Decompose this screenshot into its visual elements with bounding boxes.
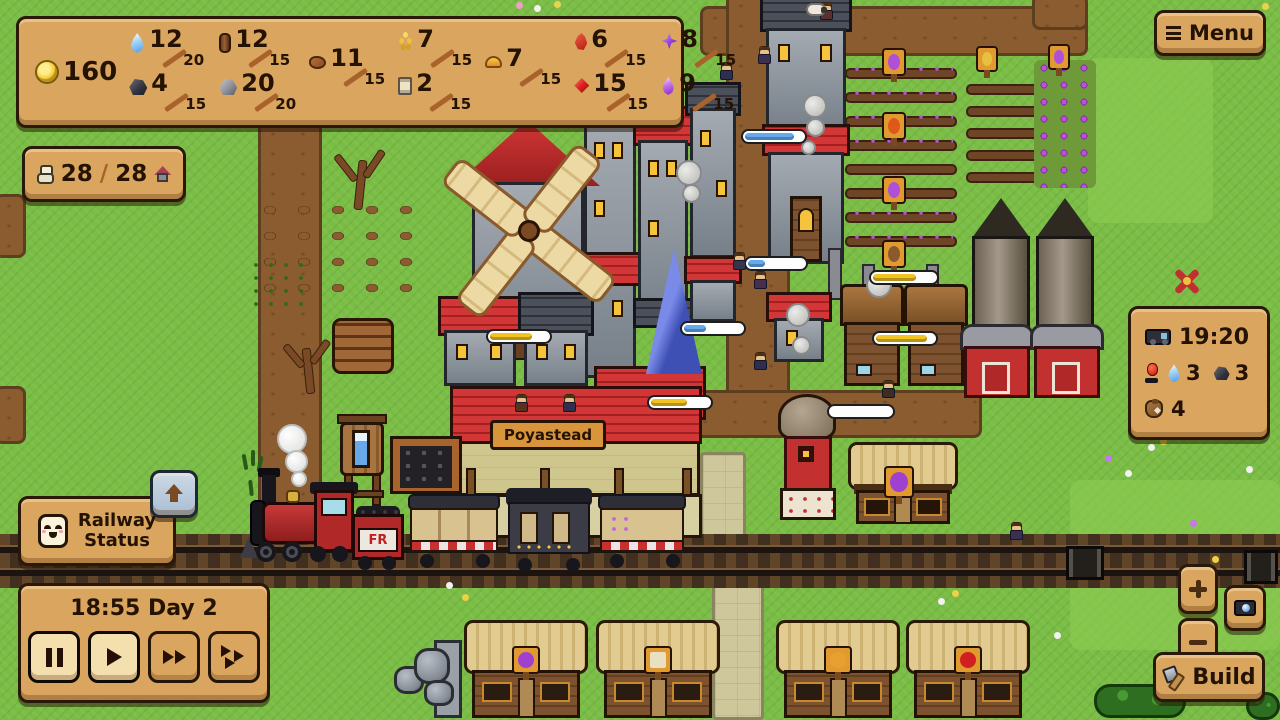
smoke-puff bbox=[792, 336, 811, 355]
minus-icon bbox=[1189, 633, 1207, 651]
flower bbox=[1148, 444, 1155, 451]
speed-controls bbox=[28, 631, 260, 683]
flower bbox=[1054, 632, 1061, 639]
resource-max: 15 bbox=[364, 70, 385, 88]
train-icon bbox=[1145, 329, 1171, 345]
fastest-button[interactable] bbox=[208, 631, 260, 683]
flower bbox=[534, 5, 541, 12]
flower bbox=[1125, 470, 1132, 477]
villager bbox=[754, 271, 767, 289]
resource-ruby: 1515 bbox=[574, 75, 649, 119]
loco-boiler[interactable] bbox=[262, 502, 322, 544]
red-silo[interactable] bbox=[784, 436, 832, 492]
steam-puff bbox=[291, 471, 307, 487]
window bbox=[612, 142, 623, 159]
plus-icon bbox=[1189, 580, 1207, 598]
dirt-road-stub bbox=[0, 386, 26, 444]
log-icon bbox=[219, 33, 231, 53]
stall-sign[interactable] bbox=[954, 646, 982, 674]
silo-base bbox=[780, 488, 836, 520]
window bbox=[564, 344, 576, 360]
resource-clay: 1115 bbox=[309, 50, 386, 94]
station-post bbox=[682, 468, 692, 496]
resource-column: 1115 bbox=[309, 31, 386, 113]
resource-paper: 215 bbox=[398, 75, 473, 119]
resource-column: 715 bbox=[485, 31, 562, 113]
signal-icon bbox=[1145, 363, 1158, 383]
resource-max: 15 bbox=[185, 95, 206, 113]
screenshot-button[interactable] bbox=[1224, 585, 1266, 631]
dirt-road-stub bbox=[0, 194, 26, 258]
villager bbox=[758, 46, 771, 64]
stall-sign[interactable] bbox=[644, 646, 672, 674]
coin-count: 160 bbox=[63, 57, 117, 87]
resource-max: 15 bbox=[451, 51, 472, 69]
stone-icon bbox=[219, 79, 237, 95]
window bbox=[594, 200, 605, 217]
villager-icon bbox=[37, 165, 54, 184]
resource-coal: 415 bbox=[129, 75, 207, 119]
resource-max: 15 bbox=[713, 95, 734, 113]
carrot-glyph bbox=[888, 118, 900, 134]
train-cargo-row: 3 3 bbox=[1145, 361, 1253, 385]
gem-glyph bbox=[960, 652, 976, 668]
barn-door bbox=[1052, 362, 1080, 394]
railway-status-line2: Status bbox=[84, 531, 150, 551]
blush bbox=[42, 530, 46, 533]
farm-sign[interactable] bbox=[882, 48, 906, 76]
wheat-icon bbox=[398, 32, 413, 52]
progress-bar-fill bbox=[490, 333, 532, 340]
coal-icon bbox=[129, 79, 147, 95]
flower bbox=[1190, 520, 1197, 527]
progress-bar-fill bbox=[876, 335, 927, 342]
loco-chimney bbox=[262, 475, 276, 505]
population-panel: 28 / 28 bbox=[22, 146, 186, 202]
smoke-puff bbox=[803, 94, 827, 118]
build-button[interactable]: Build bbox=[1153, 652, 1265, 702]
coin-counter: 160 bbox=[35, 31, 117, 113]
resource-max: 20 bbox=[275, 95, 296, 113]
resource-value: 20 bbox=[241, 69, 274, 97]
tender-logo: FR bbox=[369, 533, 388, 548]
loco-wheel bbox=[256, 542, 276, 562]
house-icon bbox=[154, 166, 171, 182]
stall-counter bbox=[540, 682, 570, 702]
wheel bbox=[518, 558, 532, 572]
dirt-road-stub bbox=[1032, 0, 1088, 30]
flower bbox=[462, 594, 469, 601]
loco-wheel bbox=[282, 542, 302, 562]
silo-window bbox=[798, 446, 814, 462]
stone-path bbox=[700, 452, 746, 538]
train-arrival-time: 19:20 bbox=[1179, 325, 1249, 350]
water-drop-icon bbox=[1167, 364, 1181, 382]
scroll-icon bbox=[398, 77, 412, 95]
resource-max: 15 bbox=[450, 95, 471, 113]
datetime-label: 18:55 Day 2 bbox=[70, 596, 217, 621]
water-count: 3 bbox=[1186, 361, 1201, 385]
window bbox=[700, 130, 711, 147]
loco-wheel bbox=[310, 546, 326, 562]
car-trim bbox=[410, 540, 498, 552]
resource-bread: 715 bbox=[485, 50, 562, 94]
villager bbox=[1010, 522, 1023, 540]
progress-bar bbox=[744, 256, 808, 271]
resource-value: 6 bbox=[591, 25, 608, 53]
boxcar-door bbox=[552, 512, 570, 544]
stall-sign[interactable] bbox=[824, 646, 852, 674]
window bbox=[920, 364, 936, 376]
stone-pile[interactable] bbox=[414, 648, 450, 684]
progress-bar-fill bbox=[651, 399, 687, 406]
barn-door bbox=[982, 362, 1010, 394]
cargo-count: 4 bbox=[1171, 397, 1186, 421]
resource-value: 11 bbox=[330, 44, 363, 72]
fast-forward-icon bbox=[163, 650, 186, 664]
mushroom-field[interactable] bbox=[1034, 60, 1096, 188]
resource-column: 715 215 bbox=[398, 31, 473, 113]
window bbox=[648, 220, 659, 237]
water-drop-icon bbox=[129, 33, 145, 53]
resource-wheat: 715 bbox=[398, 31, 473, 75]
flower bbox=[1262, 3, 1269, 10]
farm-sign[interactable] bbox=[976, 46, 998, 72]
villager bbox=[733, 252, 746, 270]
flower bbox=[1105, 455, 1112, 462]
dead-tree[interactable] bbox=[282, 338, 334, 394]
train-arrival-row: 19:20 bbox=[1145, 325, 1253, 350]
window bbox=[612, 300, 623, 317]
villager bbox=[563, 394, 576, 412]
wheel bbox=[476, 554, 490, 568]
pinwheel bbox=[1172, 266, 1202, 296]
build-button-label: Build bbox=[1192, 665, 1255, 690]
resource-value: 8 bbox=[681, 25, 698, 53]
flower bbox=[446, 582, 453, 589]
flower bbox=[1212, 556, 1219, 563]
window bbox=[856, 364, 872, 376]
zoom-in-button[interactable] bbox=[1178, 564, 1218, 614]
play-button[interactable] bbox=[88, 631, 140, 683]
railway-status-line1: Railway bbox=[78, 511, 156, 531]
window bbox=[778, 44, 790, 62]
window bbox=[820, 44, 832, 62]
menu-button-label: Menu bbox=[1189, 21, 1254, 45]
flower bbox=[938, 598, 945, 605]
stall-counter bbox=[982, 682, 1012, 702]
resource-column: 815 915 bbox=[661, 31, 737, 113]
pepper-icon bbox=[574, 33, 587, 50]
game-viewport: Poyastead FR bbox=[0, 0, 1280, 720]
boxcar-door bbox=[520, 512, 538, 544]
farm-sign[interactable] bbox=[882, 240, 906, 268]
progress-bar bbox=[869, 270, 939, 285]
water-level bbox=[355, 433, 367, 465]
windmill-hub bbox=[518, 220, 540, 242]
stall-door bbox=[650, 678, 667, 718]
grass-light-patch bbox=[1088, 58, 1213, 223]
passenger-car[interactable] bbox=[410, 508, 498, 544]
steam-puff bbox=[285, 450, 308, 473]
cab-window bbox=[321, 498, 347, 516]
smiley-face-icon bbox=[38, 514, 68, 548]
coal-icon bbox=[1214, 366, 1230, 380]
stone-pile[interactable] bbox=[424, 680, 454, 706]
hammer-icon bbox=[1162, 666, 1184, 688]
steam-dome bbox=[286, 490, 300, 503]
resource-column: 1215 2020 bbox=[219, 31, 297, 113]
cabin-roof bbox=[904, 284, 968, 326]
stall-counter bbox=[852, 682, 882, 702]
log-pile[interactable] bbox=[332, 318, 394, 374]
progress-bar bbox=[827, 404, 895, 419]
tender-logo-panel: FR bbox=[358, 528, 398, 552]
progress-bar-fill bbox=[748, 260, 765, 267]
window bbox=[456, 344, 468, 360]
bread-glyph bbox=[830, 652, 846, 668]
resource-value: 9 bbox=[679, 69, 696, 97]
station-post bbox=[614, 468, 624, 496]
farm-sign[interactable] bbox=[1048, 44, 1070, 70]
wheel bbox=[382, 556, 396, 570]
progress-bar bbox=[486, 329, 552, 344]
buffer-stop[interactable] bbox=[1066, 546, 1104, 580]
flower-glyph bbox=[888, 54, 900, 70]
stone-house[interactable] bbox=[690, 280, 736, 322]
villager bbox=[515, 394, 528, 412]
train-arrival-panel: 19:20 3 3 4 bbox=[1128, 306, 1270, 440]
stall-door bbox=[960, 678, 977, 718]
leather-glyph bbox=[888, 246, 900, 262]
stall-door bbox=[830, 678, 847, 718]
time-panel: 18:55 Day 2 bbox=[18, 583, 270, 703]
wheel bbox=[610, 554, 624, 568]
arch-window bbox=[798, 208, 814, 232]
progress-bar bbox=[680, 321, 746, 336]
station-post bbox=[466, 468, 476, 496]
smoke-puff bbox=[786, 303, 810, 327]
crop-row[interactable] bbox=[845, 92, 957, 103]
crop-row[interactable] bbox=[845, 164, 957, 175]
villager bbox=[882, 380, 895, 398]
menu-button[interactable]: Menu bbox=[1154, 10, 1266, 56]
resource-water: 1220 bbox=[129, 31, 207, 75]
collapse-button[interactable] bbox=[150, 470, 198, 518]
wheel bbox=[666, 554, 680, 568]
smoke-puff bbox=[682, 184, 701, 203]
stall-door bbox=[518, 678, 535, 718]
flower-cargo bbox=[608, 514, 632, 534]
boxcar-lights bbox=[514, 544, 576, 551]
bread-icon bbox=[485, 56, 502, 68]
population-separator: / bbox=[100, 161, 108, 187]
purple-droplet-icon bbox=[661, 77, 675, 95]
crop-row[interactable] bbox=[845, 212, 957, 223]
window bbox=[648, 160, 659, 177]
sheep bbox=[806, 3, 826, 16]
tower-leg bbox=[372, 472, 381, 506]
farm-sign[interactable] bbox=[882, 112, 906, 140]
gem-glyph bbox=[518, 652, 534, 668]
fastest-icon bbox=[220, 644, 248, 670]
flower bbox=[1246, 466, 1253, 473]
stall-counter bbox=[794, 682, 824, 702]
progress-bar bbox=[872, 331, 938, 346]
flower-glyph bbox=[888, 182, 900, 198]
resource-value: 2 bbox=[416, 69, 433, 97]
smoke-puff bbox=[806, 118, 825, 137]
station-sign[interactable]: Poyastead bbox=[490, 420, 606, 450]
resource-column: 615 1515 bbox=[574, 31, 649, 113]
loco-wheel bbox=[332, 546, 348, 562]
stall-counter bbox=[924, 682, 954, 702]
red-gem-icon bbox=[574, 78, 589, 93]
progress-bar-fill bbox=[873, 274, 916, 281]
clay-icon bbox=[309, 56, 326, 69]
stall-counter bbox=[672, 682, 702, 702]
camera-icon bbox=[1234, 600, 1256, 616]
play-icon bbox=[107, 648, 122, 666]
farm-sign[interactable] bbox=[882, 176, 906, 204]
resources-panel: 160 1220 415 1215 2020 bbox=[16, 16, 684, 128]
coal-count: 3 bbox=[1235, 361, 1250, 385]
progress-bar bbox=[647, 395, 713, 410]
resource-value: 15 bbox=[593, 69, 626, 97]
up-arrow-icon bbox=[164, 484, 184, 504]
resource-max: 20 bbox=[183, 51, 204, 69]
stall-sign[interactable] bbox=[512, 646, 540, 674]
mushroom-glyph bbox=[1054, 50, 1064, 64]
resource-value: 12 bbox=[235, 25, 268, 53]
window bbox=[490, 344, 502, 360]
car-trim bbox=[600, 540, 684, 552]
resource-amethyst: 815 bbox=[661, 31, 737, 75]
purple-gem-icon bbox=[661, 33, 677, 49]
shop-counter bbox=[864, 498, 890, 516]
coin-icon bbox=[35, 60, 59, 84]
wheel bbox=[420, 554, 434, 568]
population-current: 28 bbox=[61, 161, 93, 187]
flower bbox=[952, 590, 959, 597]
coal-heap bbox=[400, 446, 452, 488]
resource-value: 4 bbox=[151, 69, 168, 97]
wheel bbox=[358, 556, 372, 570]
smoke-puff bbox=[676, 160, 702, 186]
buffer-stop[interactable] bbox=[1244, 550, 1278, 584]
train-goods-row: 4 bbox=[1145, 397, 1253, 421]
population-max: 28 bbox=[115, 161, 147, 187]
sprout-field[interactable] bbox=[248, 258, 310, 310]
mushroom-glyph bbox=[890, 472, 908, 492]
resource-max: 15 bbox=[715, 51, 736, 69]
resource-max: 15 bbox=[540, 70, 561, 88]
resource-stone: 2020 bbox=[219, 75, 297, 119]
progress-bar-fill bbox=[745, 133, 794, 140]
pause-icon bbox=[46, 648, 63, 667]
stall-counter bbox=[482, 682, 512, 702]
resource-value: 7 bbox=[506, 44, 523, 72]
resource-value: 7 bbox=[417, 25, 434, 53]
sack-icon bbox=[1145, 400, 1163, 418]
window bbox=[536, 344, 548, 360]
fast-forward-button[interactable] bbox=[148, 631, 200, 683]
wheat-glyph bbox=[982, 52, 992, 66]
steam-puff bbox=[277, 424, 307, 454]
silo-dome bbox=[778, 394, 836, 440]
shop-counter bbox=[916, 498, 942, 516]
progress-bar bbox=[741, 129, 807, 144]
scroll-glyph bbox=[650, 652, 666, 668]
dead-tree[interactable] bbox=[332, 146, 388, 210]
resource-column: 1220 415 bbox=[129, 31, 207, 113]
station-sign-label: Poyastead bbox=[504, 426, 592, 444]
flower bbox=[516, 2, 523, 9]
flower bbox=[554, 1, 561, 8]
villager bbox=[754, 352, 767, 370]
resource-value: 12 bbox=[149, 25, 182, 53]
resource-max: 15 bbox=[627, 95, 648, 113]
window bbox=[716, 180, 727, 197]
resource-max: 15 bbox=[625, 51, 646, 69]
crop-row[interactable] bbox=[845, 140, 957, 151]
stall-counter bbox=[614, 682, 644, 702]
hamburger-icon bbox=[1166, 26, 1181, 40]
resource-elixir: 915 bbox=[661, 75, 737, 119]
resource-max: 15 bbox=[269, 51, 290, 69]
progress-bar-fill bbox=[684, 325, 706, 332]
shop-sign[interactable] bbox=[884, 466, 914, 498]
pause-button[interactable] bbox=[28, 631, 80, 683]
wheel bbox=[566, 558, 580, 572]
